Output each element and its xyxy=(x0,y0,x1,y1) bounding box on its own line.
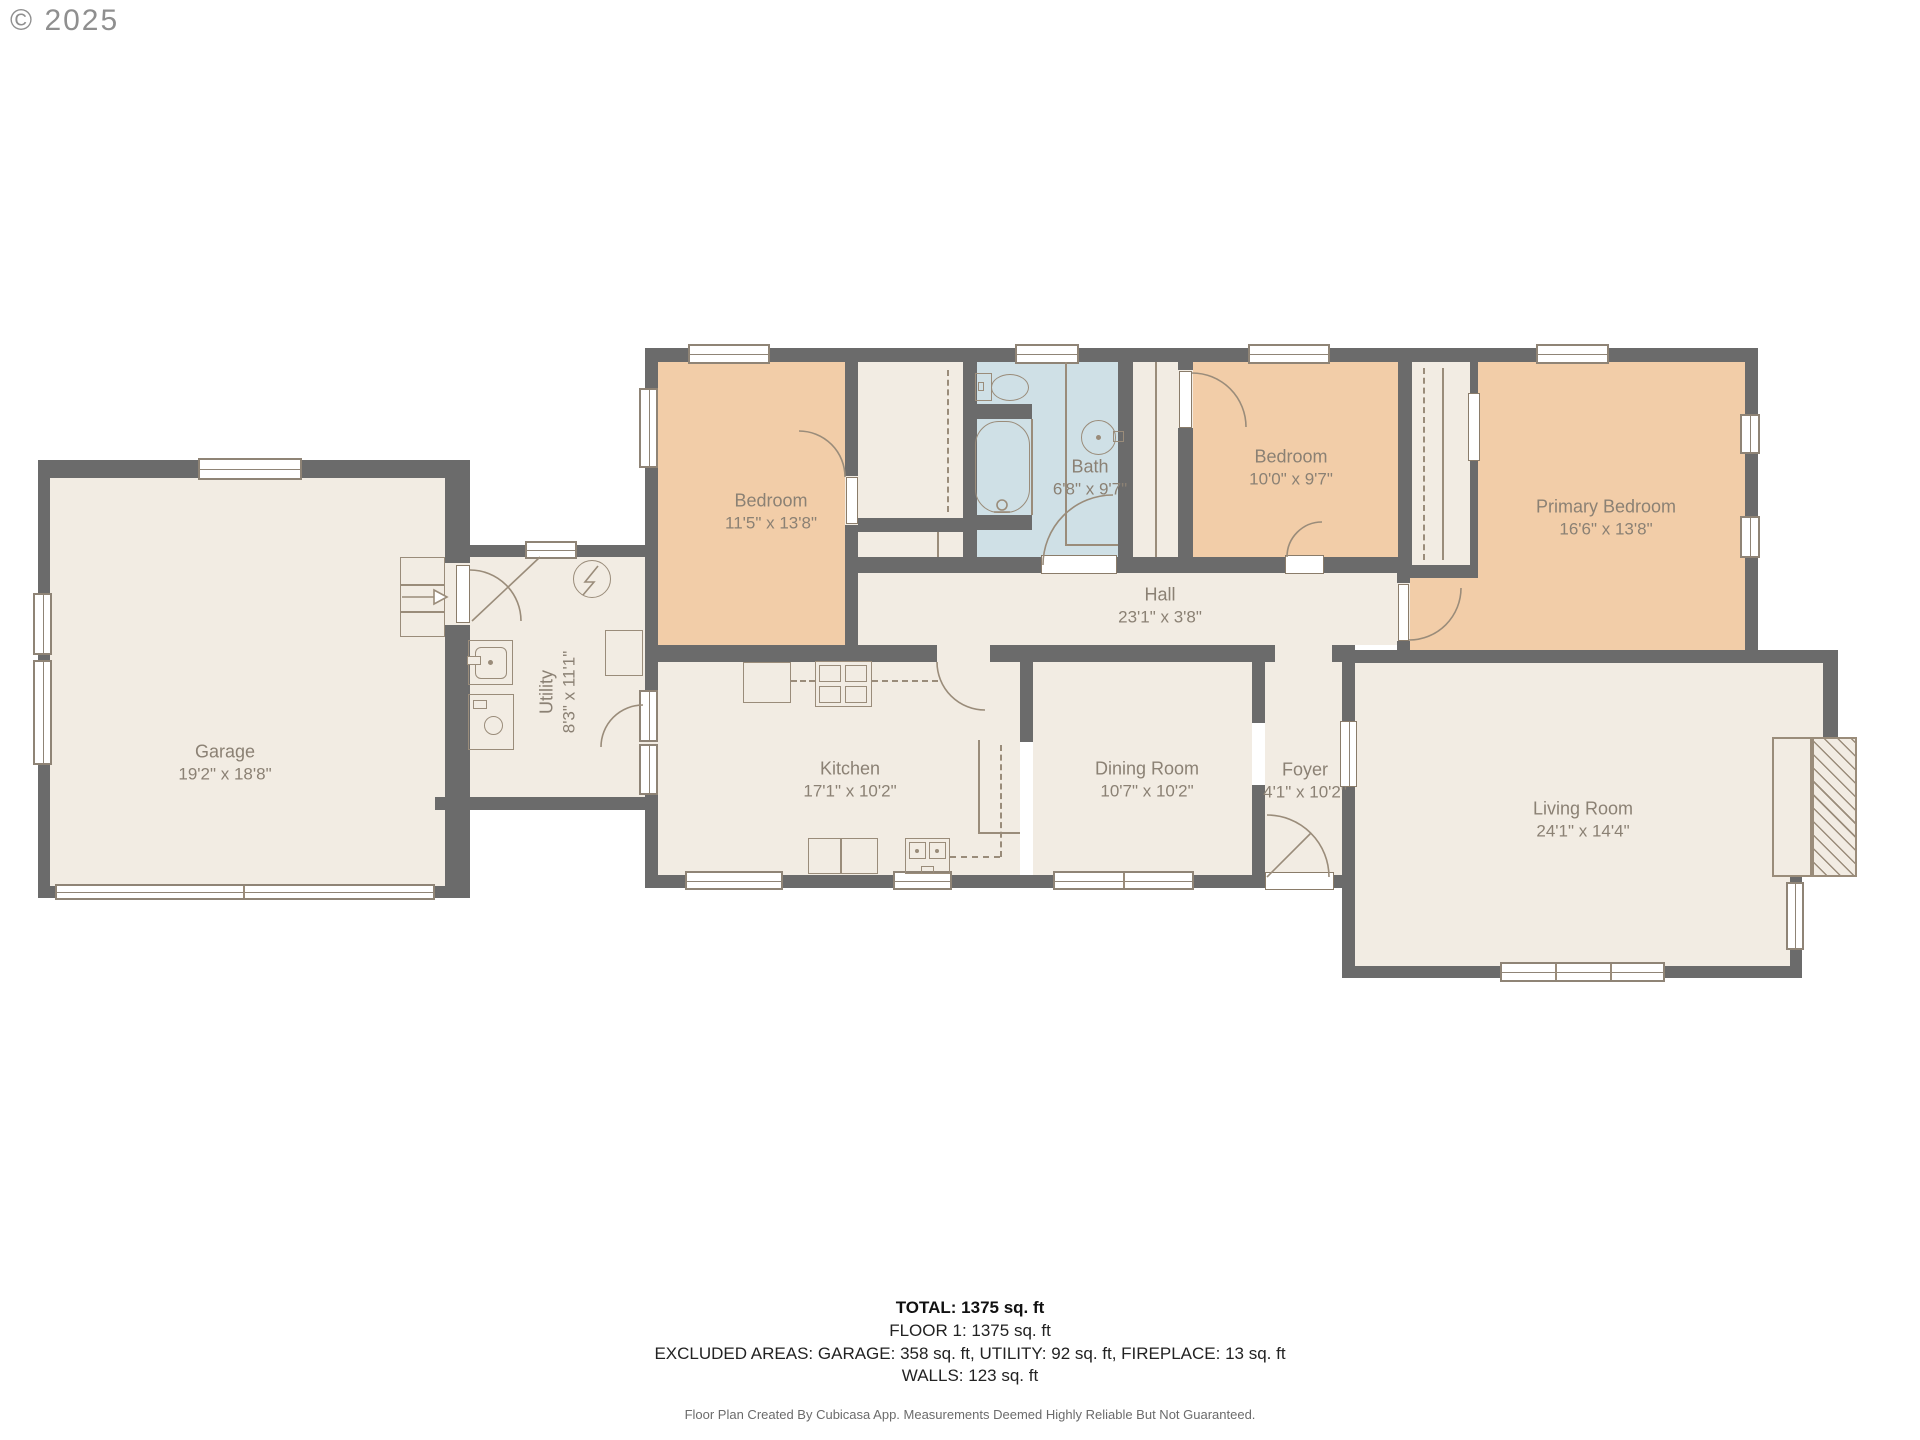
window-divider xyxy=(1555,964,1557,980)
window xyxy=(1015,344,1079,364)
room-living xyxy=(1355,737,1790,966)
room-label-bedroom-1: Bedroom 11'5" x 13'8" xyxy=(725,489,817,534)
room-label-garage: Garage 19'2" x 18'8" xyxy=(178,740,271,785)
vanity-line xyxy=(1065,362,1067,545)
floor-plan-page: © 2025 xyxy=(0,0,1920,1440)
closet-slider xyxy=(1468,393,1480,461)
upper-cabinet-dashed xyxy=(872,680,938,682)
floor-area-text: FLOOR 1: 1375 sq. ft xyxy=(889,1321,1051,1341)
room-dims: 24'1" x 14'4" xyxy=(1533,821,1633,843)
copyright-text: © 2025 xyxy=(10,4,119,38)
room-name: Bedroom xyxy=(725,489,817,512)
window xyxy=(1740,516,1760,558)
window xyxy=(1536,344,1609,364)
window-divider xyxy=(1610,964,1612,980)
closet-rod-dashed xyxy=(1423,368,1425,560)
wall xyxy=(970,515,1032,530)
counter xyxy=(808,838,841,874)
wall xyxy=(1020,645,1033,742)
room-label-hall: Hall 23'1" x 3'8" xyxy=(1118,583,1202,628)
wall xyxy=(970,404,1032,419)
room-name: Kitchen xyxy=(803,757,896,780)
faucet-dot xyxy=(488,660,493,665)
room-label-utility: Utility 8'3" x 11'1" xyxy=(535,651,580,734)
burner xyxy=(845,686,867,703)
wall xyxy=(435,797,658,810)
counter xyxy=(841,838,878,874)
room-name: Dining Room xyxy=(1095,757,1199,780)
upper-cabinet-dashed xyxy=(791,680,815,682)
upper-cabinet-dashed xyxy=(1000,745,1002,857)
wall xyxy=(858,557,1412,573)
front-door-threshold xyxy=(1265,872,1334,890)
tub-edge-line xyxy=(1031,419,1033,515)
room-garage xyxy=(50,478,445,886)
toilet-bowl xyxy=(991,374,1029,401)
bath-sink-tap xyxy=(1113,431,1124,442)
window xyxy=(1740,414,1760,454)
door-leaf xyxy=(846,477,858,524)
burner xyxy=(845,665,867,682)
upper-cabinet-dashed xyxy=(950,856,1000,858)
stair-tread xyxy=(400,584,445,586)
washer-panel xyxy=(473,700,487,709)
closet-divider xyxy=(1442,368,1444,560)
room-label-living-room: Living Room 24'1" x 14'4" xyxy=(1533,797,1633,842)
window xyxy=(639,388,658,468)
room-dims: 16'6" x 13'8" xyxy=(1536,519,1676,541)
vanity-line xyxy=(1065,544,1118,546)
room-dims: 10'7" x 10'2" xyxy=(1095,781,1199,803)
room-name: Bedroom xyxy=(1249,445,1333,468)
room-dims: 11'5" x 13'8" xyxy=(725,513,817,535)
toilet-button xyxy=(978,382,984,391)
room-label-bedroom-2: Bedroom 10'0" x 9'7" xyxy=(1249,445,1333,490)
faucet xyxy=(921,866,934,874)
excluded-areas-text: EXCLUDED AREAS: GARAGE: 358 sq. ft, UTIL… xyxy=(654,1344,1285,1364)
fridge xyxy=(743,662,791,703)
room-name: Living Room xyxy=(1533,797,1633,820)
window xyxy=(525,541,577,559)
window xyxy=(33,593,52,655)
window xyxy=(639,744,658,795)
closet-divider xyxy=(1155,362,1157,557)
room-name: Hall xyxy=(1118,583,1202,606)
faucet xyxy=(467,656,481,665)
closet-hall xyxy=(858,532,963,557)
door-leaf xyxy=(1398,584,1409,641)
window xyxy=(1786,882,1804,950)
stair-tread xyxy=(400,611,445,613)
window-divider xyxy=(1123,873,1125,888)
door-leaf xyxy=(1179,371,1192,428)
door-opening xyxy=(1275,645,1332,662)
window xyxy=(639,690,658,742)
room-dims: 8'3" x 11'1" xyxy=(559,651,581,734)
room-dims: 23'1" x 3'8" xyxy=(1118,607,1202,629)
room-living-upper xyxy=(1355,663,1823,737)
garage-door xyxy=(55,884,435,900)
wall xyxy=(1398,565,1478,578)
room-label-foyer: Foyer 4'1" x 10'2" xyxy=(1263,758,1347,803)
door-threshold xyxy=(1041,555,1117,574)
credit-text: Floor Plan Created By Cubicasa App. Meas… xyxy=(685,1407,1256,1422)
door-opening xyxy=(937,645,990,662)
door-leaf xyxy=(456,565,470,623)
room-label-bath: Bath 6'8" x 9'7" xyxy=(1053,455,1127,500)
fireplace-hearth xyxy=(1772,737,1812,877)
burner xyxy=(819,686,841,703)
fireplace-chimney-hatch xyxy=(1812,737,1857,877)
garage-door-divider xyxy=(243,886,245,898)
closet-divider xyxy=(937,532,939,557)
window xyxy=(1500,962,1665,982)
closet-rod-dashed xyxy=(947,370,949,512)
sink-drain xyxy=(935,849,939,853)
window xyxy=(688,344,770,364)
wall xyxy=(1342,650,1838,663)
water-heater-icon xyxy=(573,560,611,598)
room-dims: 6'8" x 9'7" xyxy=(1053,479,1127,501)
dryer xyxy=(605,630,643,676)
room-label-kitchen: Kitchen 17'1" x 10'2" xyxy=(803,757,896,802)
bathtub xyxy=(975,421,1030,513)
counter-line xyxy=(978,740,980,833)
room-dims: 10'0" x 9'7" xyxy=(1249,469,1333,491)
burner xyxy=(819,665,841,682)
wall xyxy=(445,478,470,886)
wall xyxy=(1342,663,1355,723)
door-threshold xyxy=(1285,555,1324,574)
wall xyxy=(858,518,963,532)
room-name: Utility xyxy=(535,651,558,734)
room-label-dining-room: Dining Room 10'7" x 10'2" xyxy=(1095,757,1199,802)
wall xyxy=(1745,362,1758,650)
washer-door xyxy=(484,716,503,735)
room-name: Bath xyxy=(1053,455,1127,478)
room-name: Foyer xyxy=(1263,758,1347,781)
window xyxy=(685,871,783,890)
total-area-text: TOTAL: 1375 sq. ft xyxy=(896,1298,1045,1318)
room-dims: 19'2" x 18'8" xyxy=(178,764,271,786)
wall xyxy=(1398,362,1412,565)
window xyxy=(198,458,302,480)
bath-sink-drain xyxy=(1096,435,1101,440)
window xyxy=(1248,344,1330,364)
sink-drain xyxy=(915,849,919,853)
walls-area-text: WALLS: 123 sq. ft xyxy=(902,1366,1038,1386)
room-name: Garage xyxy=(178,740,271,763)
room-dims: 4'1" x 10'2" xyxy=(1263,782,1347,804)
closet-primary xyxy=(1412,362,1470,565)
wall xyxy=(1252,662,1265,723)
room-dims: 17'1" x 10'2" xyxy=(803,781,896,803)
room-primary-bedroom-ext xyxy=(1410,578,1478,650)
room-label-primary-bedroom: Primary Bedroom 16'6" x 13'8" xyxy=(1536,495,1676,540)
counter-line xyxy=(978,832,1020,834)
room-name: Primary Bedroom xyxy=(1536,495,1676,518)
wall xyxy=(645,645,1355,662)
window xyxy=(33,660,52,765)
stairs xyxy=(400,557,445,637)
